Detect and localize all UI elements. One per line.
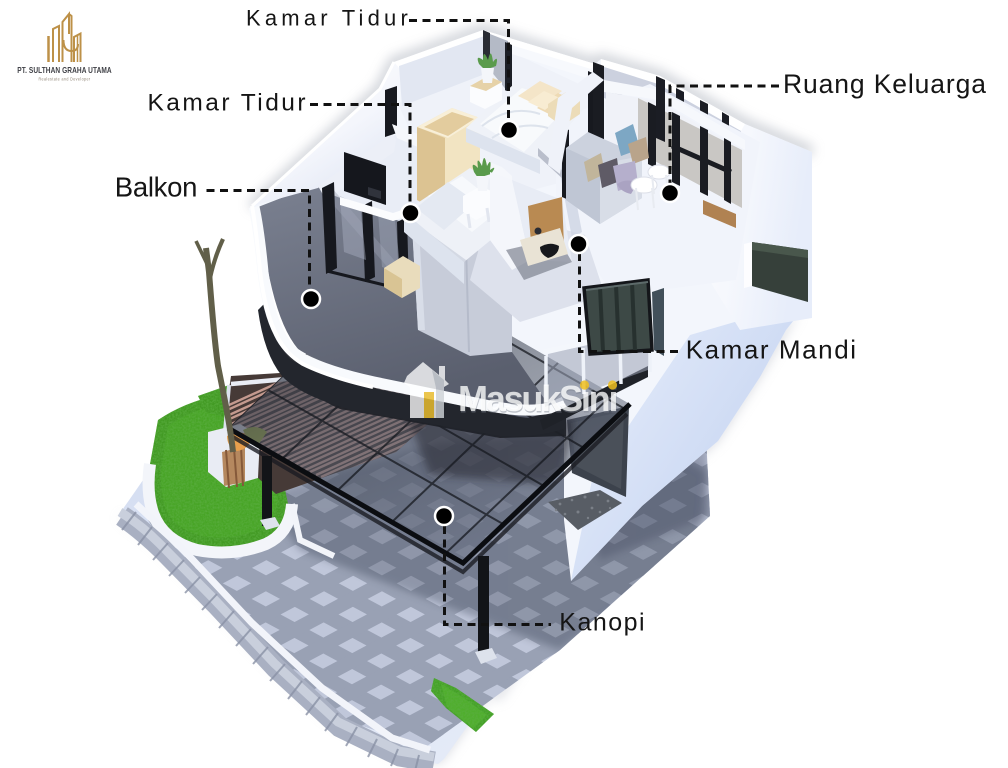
svg-text:Kanopi: Kanopi	[559, 608, 646, 636]
svg-text:MasukSini: MasukSini	[458, 378, 616, 419]
svg-text:Kamar Tidur: Kamar Tidur	[246, 6, 412, 31]
svg-text:Realestate and Developer: Realestate and Developer	[38, 76, 90, 82]
svg-text:Kamar Tidur: Kamar Tidur	[148, 89, 309, 116]
svg-text:PT. SULTHAN GRAHA UTAMA: PT. SULTHAN GRAHA UTAMA	[17, 65, 112, 75]
svg-text:Balkon: Balkon	[115, 172, 197, 203]
svg-text:Ruang Keluarga: Ruang Keluarga	[783, 69, 987, 99]
svg-text:Kamar Mandi: Kamar Mandi	[686, 334, 858, 364]
